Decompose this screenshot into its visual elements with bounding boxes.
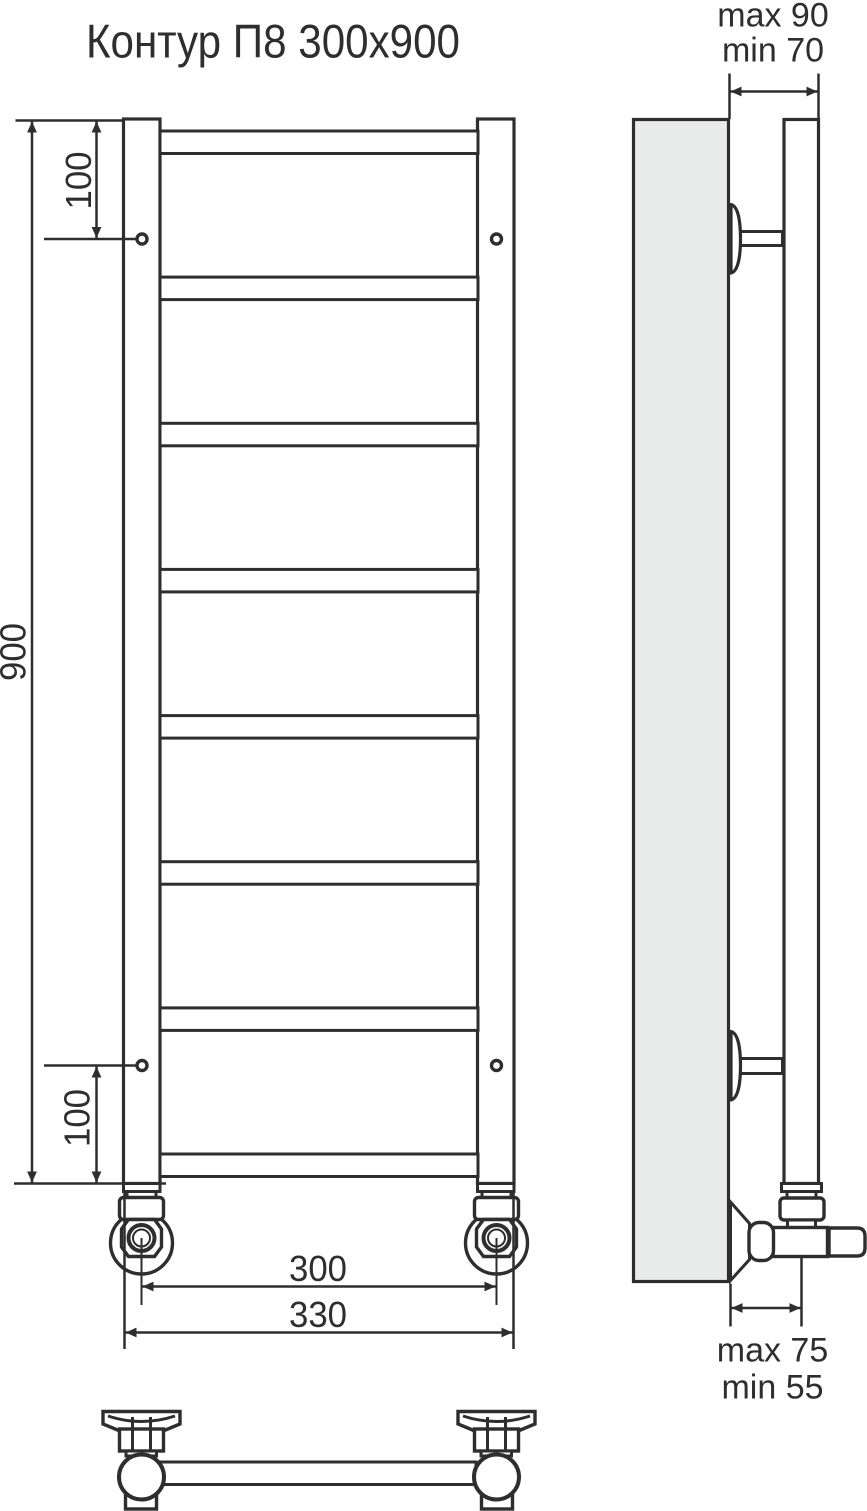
svg-text:min 70: min 70 bbox=[722, 32, 824, 70]
svg-text:max 75: max 75 bbox=[717, 1332, 829, 1370]
svg-text:330: 330 bbox=[289, 1294, 347, 1335]
svg-text:100: 100 bbox=[58, 152, 99, 210]
svg-text:max 90: max 90 bbox=[717, 0, 829, 35]
svg-text:300: 300 bbox=[289, 1248, 347, 1289]
svg-text:min 55: min 55 bbox=[721, 1369, 823, 1407]
svg-text:Контур П8 300х900: Контур П8 300х900 bbox=[86, 16, 460, 69]
svg-text:100: 100 bbox=[57, 1089, 98, 1147]
svg-text:900: 900 bbox=[0, 623, 34, 681]
